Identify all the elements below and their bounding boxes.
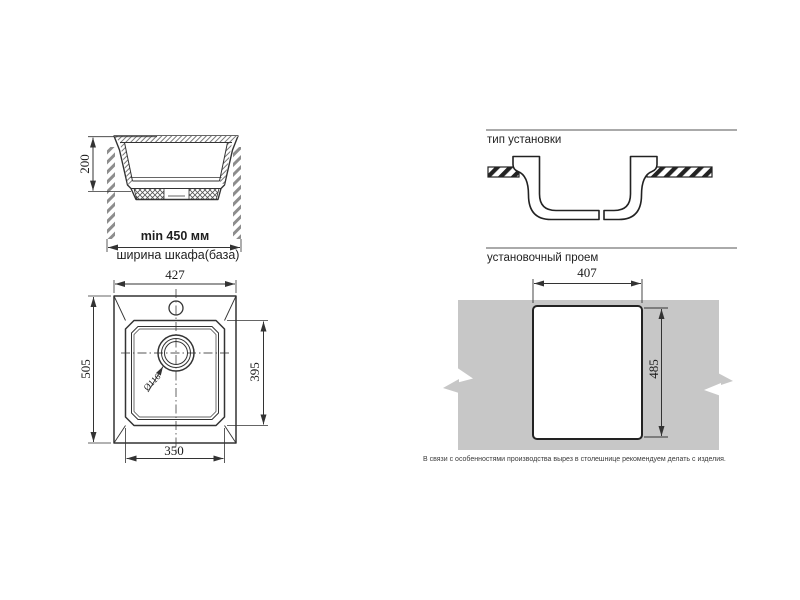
bowl-inner-edge — [132, 327, 219, 420]
cutout-rect — [533, 306, 642, 439]
dim-cutout-width-407 — [533, 279, 642, 303]
sink-top-view — [88, 280, 268, 463]
bowl-width-label: 350 — [164, 443, 184, 459]
drawing-linework — [0, 0, 800, 600]
depth-dim-label: 200 — [77, 154, 93, 174]
bowl-outer-edge — [126, 321, 225, 426]
cabinet-wall-right-hatch — [233, 147, 241, 239]
overall-length-label: 505 — [78, 359, 94, 379]
sink-body-outline — [114, 136, 238, 200]
production-note: В связи с особенностями производства выр… — [423, 456, 726, 463]
installation-opening-title: установочный проем — [487, 252, 598, 264]
cabinet-width-label: ширина шкафа(база) — [117, 248, 240, 262]
cutout-height-label: 485 — [646, 359, 662, 379]
installation-type-title: тип установки — [487, 134, 561, 146]
sink-foot-pad-left — [134, 189, 164, 200]
bowl-length-label: 395 — [247, 362, 263, 382]
sink-installation-drawing: 200 min 450 мм ширина шкафа(база) 427 50… — [0, 0, 800, 600]
break-notch-left-out — [443, 379, 459, 393]
overall-width-label: 427 — [165, 267, 185, 283]
sink-foot-pad-right — [189, 189, 219, 200]
cabinet-wall-left-hatch — [107, 147, 115, 239]
sink-outer-edge — [114, 296, 236, 443]
sink-profile — [513, 157, 657, 220]
min-width-label: min 450 мм — [141, 229, 210, 243]
cutout-width-label: 407 — [577, 265, 597, 281]
